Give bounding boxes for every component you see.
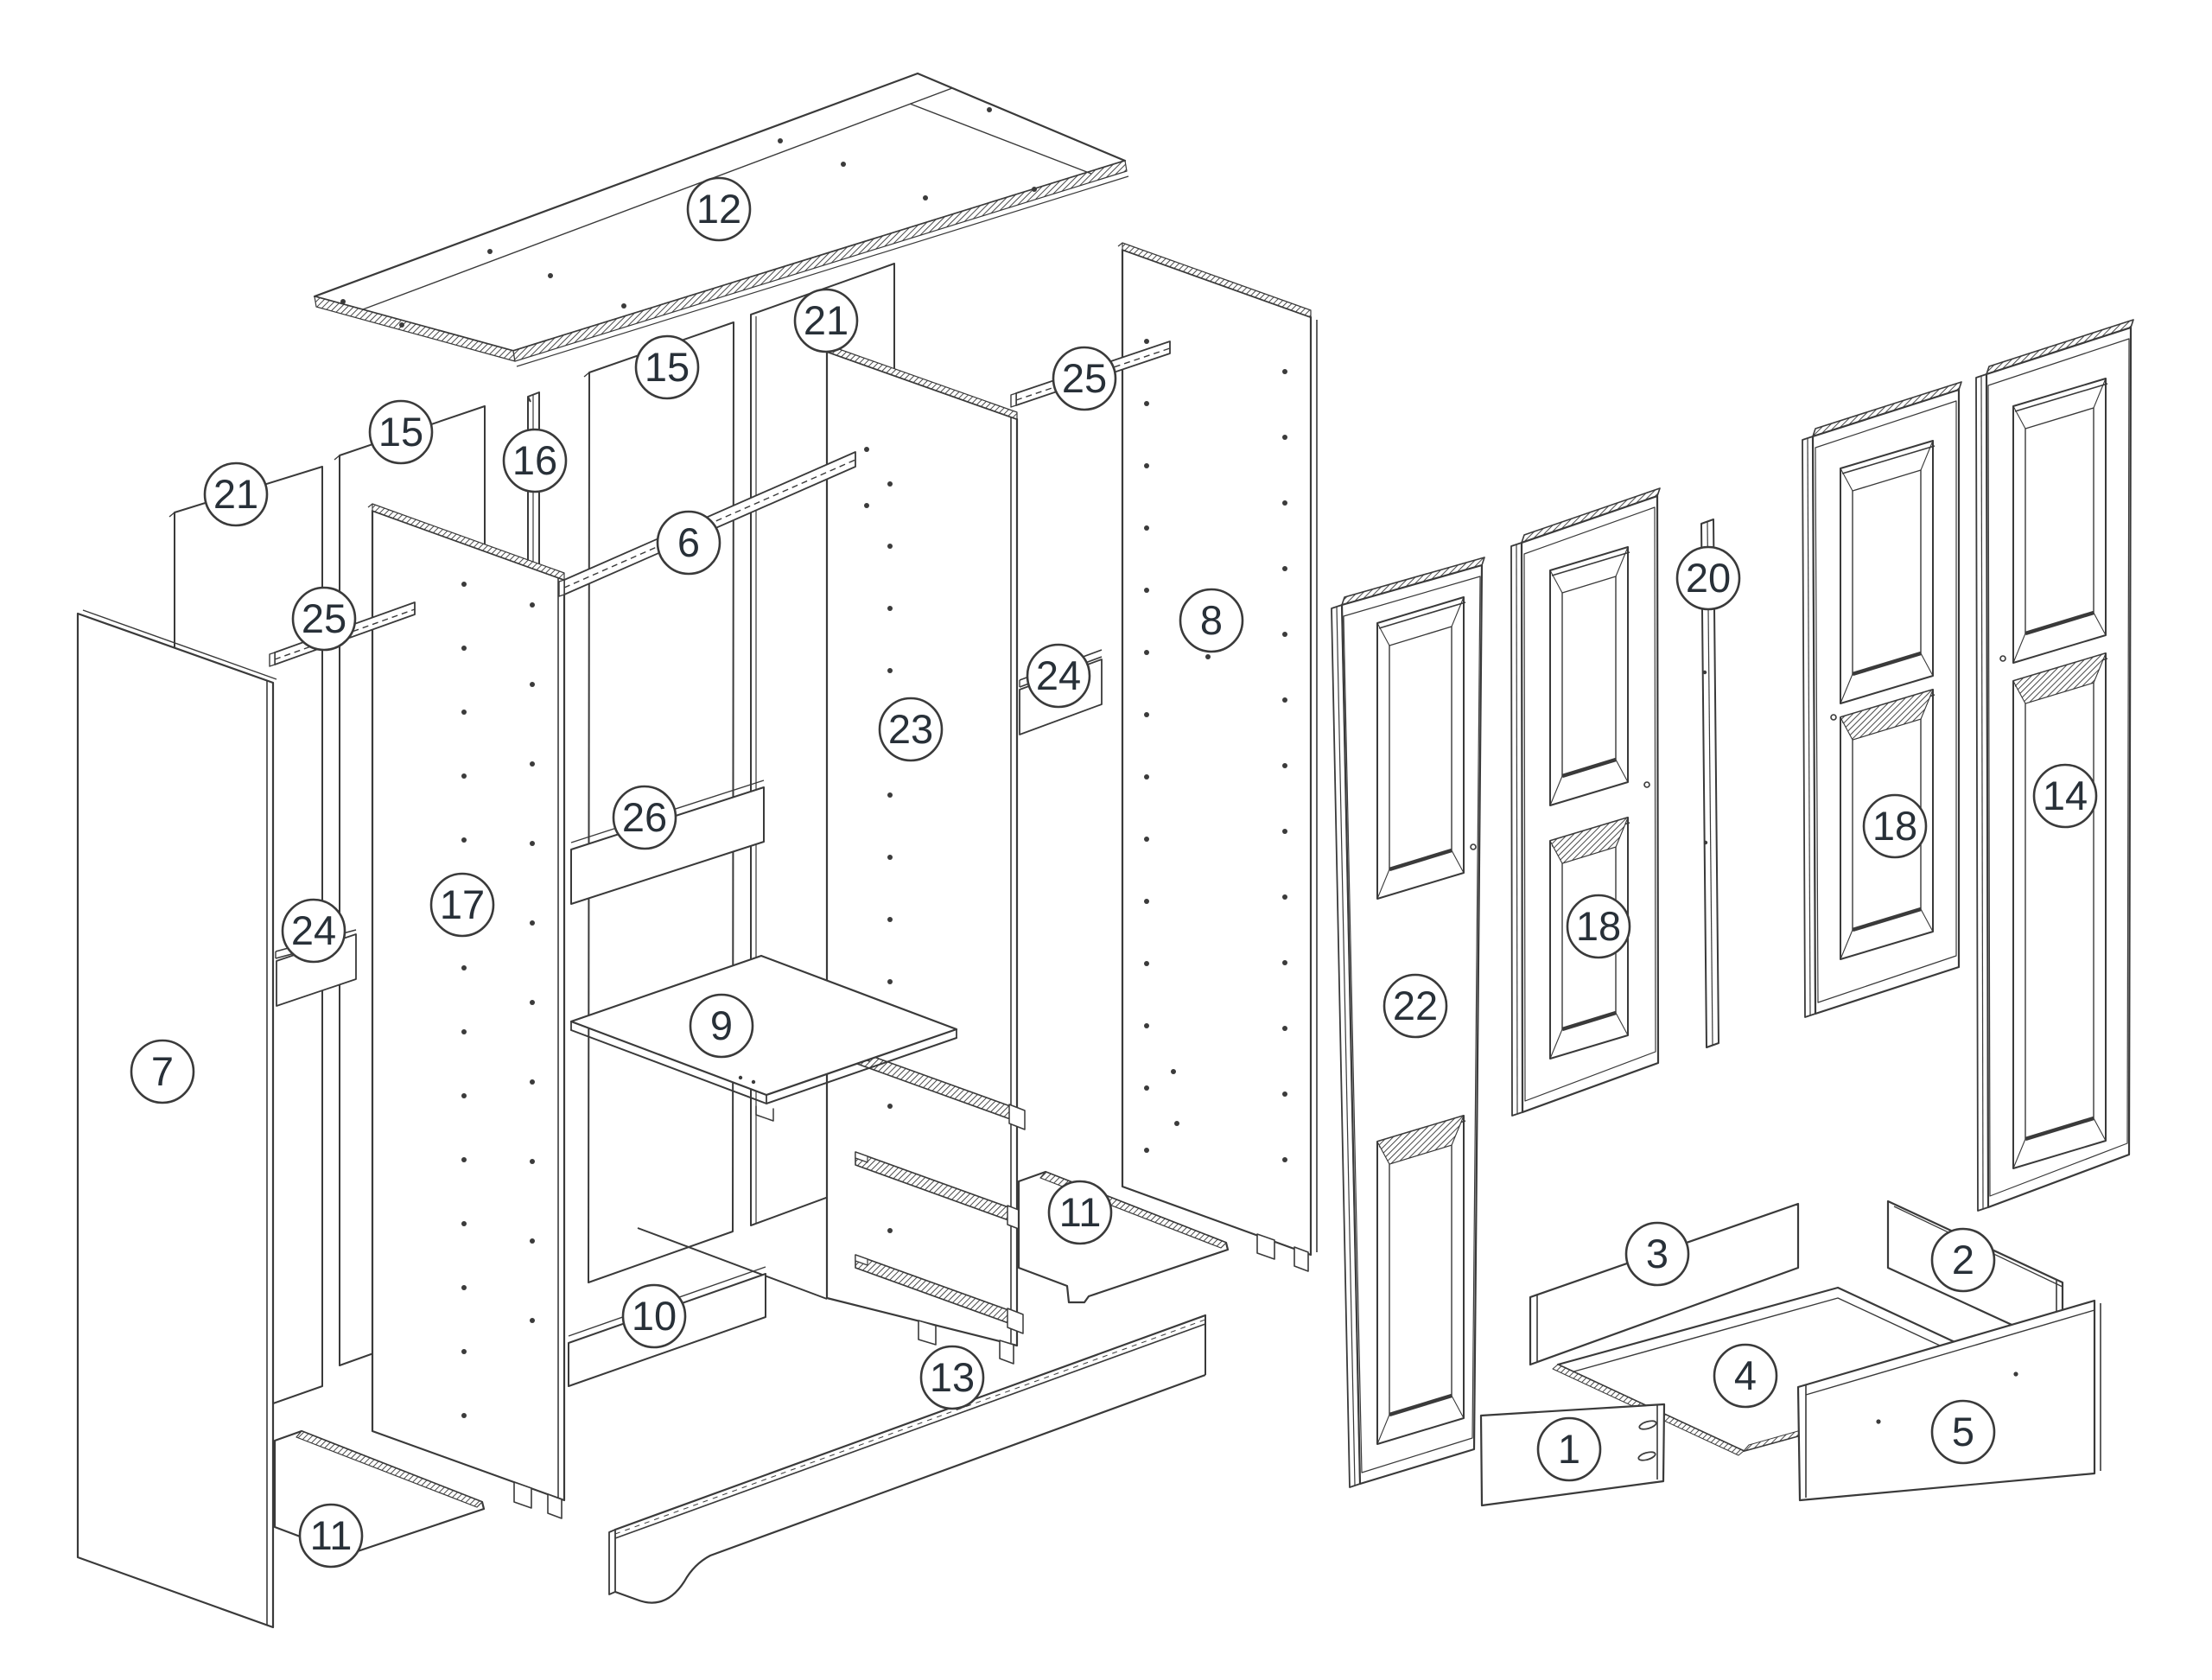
svg-text:8: 8 [1200, 597, 1223, 643]
svg-text:18: 18 [1872, 803, 1917, 849]
svg-text:15: 15 [645, 344, 690, 390]
svg-text:2: 2 [1952, 1237, 1974, 1282]
svg-text:6: 6 [677, 519, 700, 565]
svg-text:24: 24 [1036, 652, 1081, 698]
svg-text:22: 22 [1393, 983, 1438, 1028]
svg-text:7: 7 [151, 1048, 174, 1094]
svg-text:10: 10 [632, 1293, 677, 1339]
svg-text:21: 21 [804, 297, 849, 343]
svg-text:20: 20 [1686, 555, 1731, 601]
svg-text:18: 18 [1576, 903, 1621, 949]
svg-text:25: 25 [302, 595, 346, 641]
svg-text:17: 17 [440, 881, 485, 927]
svg-text:23: 23 [888, 706, 933, 752]
svg-text:15: 15 [378, 409, 423, 455]
svg-text:5: 5 [1952, 1409, 1974, 1454]
svg-text:3: 3 [1646, 1231, 1669, 1276]
svg-text:12: 12 [696, 186, 741, 232]
svg-text:16: 16 [512, 437, 557, 483]
svg-text:25: 25 [1062, 355, 1107, 401]
svg-text:4: 4 [1734, 1352, 1757, 1398]
svg-text:24: 24 [291, 907, 336, 953]
svg-text:1: 1 [1558, 1426, 1580, 1472]
svg-text:21: 21 [213, 471, 258, 517]
svg-text:14: 14 [2043, 773, 2088, 818]
svg-text:13: 13 [930, 1354, 975, 1400]
svg-text:11: 11 [310, 1512, 353, 1558]
svg-text:26: 26 [622, 794, 667, 840]
svg-text:11: 11 [1059, 1189, 1102, 1235]
svg-text:9: 9 [710, 1002, 733, 1048]
